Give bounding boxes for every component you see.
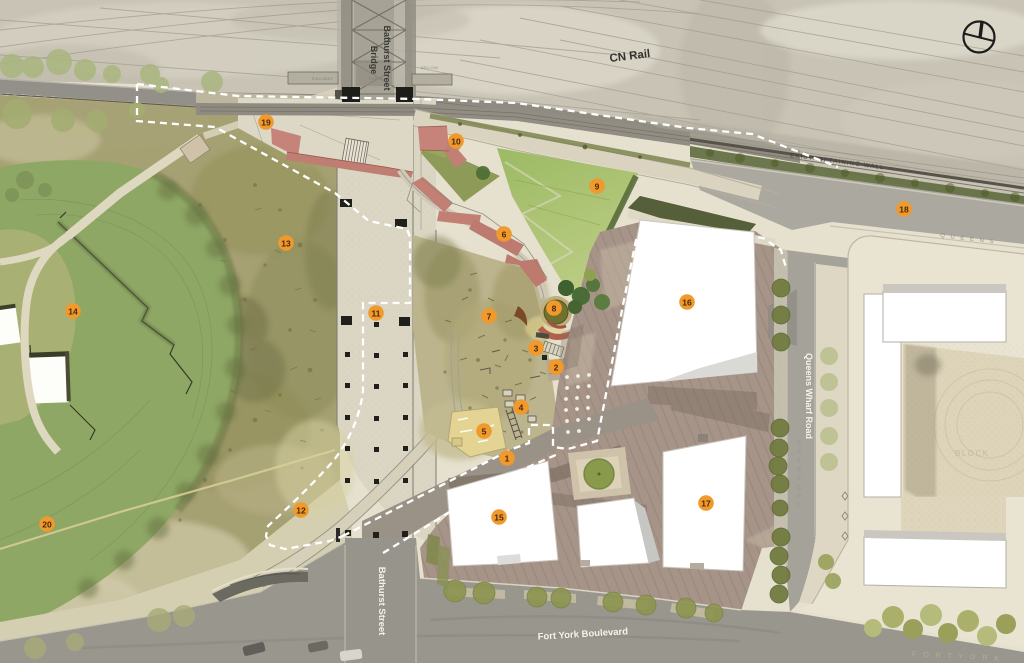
svg-text:Bathurst Street: Bathurst Street: [382, 25, 392, 90]
svg-text:BLOCK: BLOCK: [955, 449, 990, 458]
svg-text:11: 11: [372, 309, 381, 319]
svg-text:4: 4: [519, 403, 524, 413]
svg-text:O P E N R O A D: O P E N R O A D: [795, 440, 801, 508]
svg-text:10: 10: [451, 137, 461, 147]
svg-text:19: 19: [261, 118, 271, 128]
svg-text:20: 20: [42, 520, 52, 530]
svg-text:Bridge: Bridge: [369, 46, 379, 75]
svg-text:18: 18: [899, 205, 909, 215]
svg-text:9: 9: [595, 182, 600, 192]
svg-text:3: 3: [534, 344, 539, 354]
svg-text:1: 1: [505, 454, 510, 464]
svg-text:6: 6: [502, 230, 507, 240]
svg-text:17: 17: [701, 499, 711, 509]
svg-text:13: 13: [281, 239, 291, 249]
svg-text:15: 15: [494, 513, 504, 523]
svg-text:8: 8: [552, 304, 557, 314]
svg-text:RAILWAY: RAILWAY: [312, 76, 333, 81]
svg-text:Bathurst Street: Bathurst Street: [376, 567, 387, 636]
svg-text:7: 7: [487, 312, 492, 322]
svg-text:12: 12: [296, 506, 306, 516]
svg-text:2: 2: [554, 363, 559, 373]
svg-text:5: 5: [482, 427, 487, 437]
svg-text:16: 16: [682, 298, 692, 308]
svg-text:14: 14: [68, 307, 78, 317]
svg-text:Queens Wharf Road: Queens Wharf Road: [804, 353, 814, 439]
svg-text:BELOW: BELOW: [421, 65, 438, 70]
